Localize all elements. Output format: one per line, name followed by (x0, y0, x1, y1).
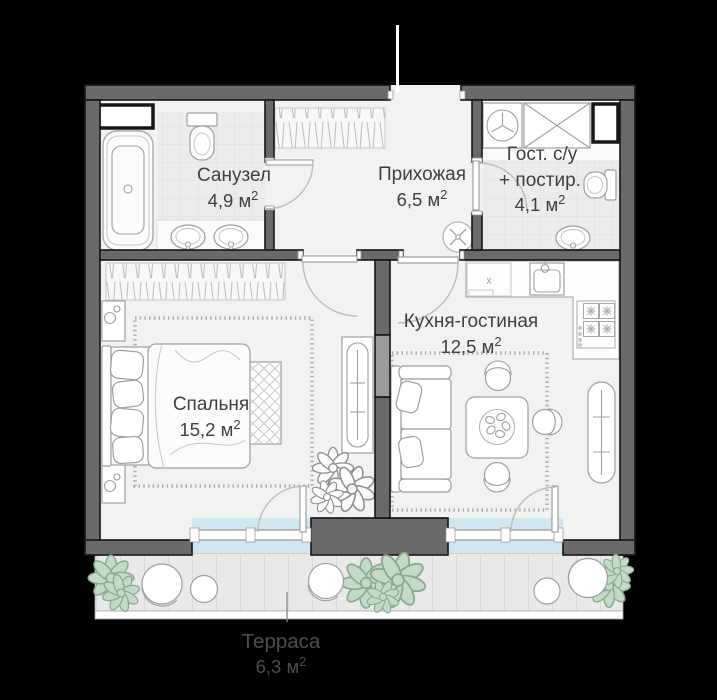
sofa (391, 366, 451, 492)
terrace-window-kitchen (446, 528, 563, 542)
kitchen-cabinet-mark: х (486, 275, 492, 287)
kitchen-label: Кухня-гостиная (404, 311, 538, 332)
bathroom-shaft (99, 105, 153, 128)
washing-machine-icon (483, 103, 522, 148)
guest-wc-shaft (593, 104, 618, 142)
hallway-label: Прихожая (378, 164, 466, 185)
toilet (187, 113, 217, 160)
bedroom-label: Спальня (173, 394, 249, 415)
stove-icon (577, 301, 615, 348)
entry-door-marker (396, 25, 399, 93)
bedroom-wardrobe (342, 337, 373, 453)
dryer-space (524, 103, 590, 148)
bed-bench (250, 362, 281, 444)
bathroom-label: Санузел (197, 165, 271, 186)
guest-wc-label-line2: + постир. (499, 170, 581, 191)
guest-toilet (584, 170, 616, 200)
guest-wc-area: 4,1 м2 (515, 192, 566, 215)
guest-wc-label-line1: Гост. с/у (507, 144, 578, 165)
kitchen-area: 12,5 м2 (440, 334, 501, 357)
kitchen-sink (530, 261, 564, 295)
wall-partition-light (375, 335, 390, 397)
bedroom-closet (106, 263, 285, 300)
terrace-area: 6,3 м2 (256, 654, 307, 677)
terrace-window-bedroom (190, 528, 311, 542)
bedroom-area: 15,2 м2 (179, 417, 240, 440)
ceiling-fan-icon (443, 222, 473, 252)
bathtub (103, 131, 153, 250)
nightstand-top (102, 301, 125, 341)
bathroom-area: 4,9 м2 (208, 188, 259, 211)
floor-plan: х (0, 0, 717, 700)
hallway-area: 6,5 м2 (397, 187, 448, 210)
kitchen-radiator (588, 382, 615, 483)
hallway-closet (275, 108, 385, 148)
nightstand-bottom (102, 461, 125, 503)
terrace-label: Терраса (242, 630, 321, 653)
